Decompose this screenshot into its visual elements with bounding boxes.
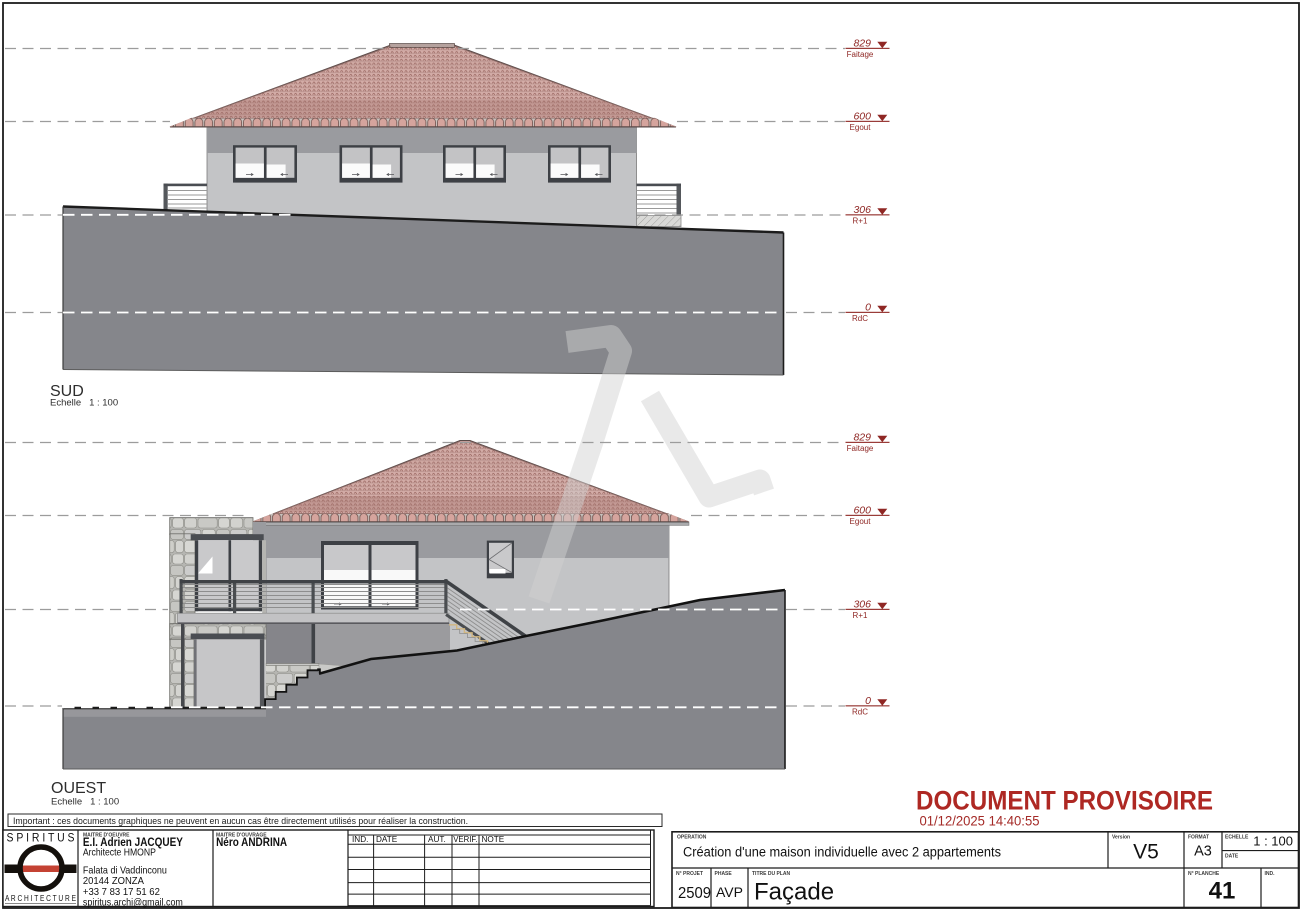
svg-text:AUT.: AUT. — [428, 835, 446, 844]
svg-text:2509: 2509 — [678, 885, 711, 902]
svg-text:S P I R I T U S: S P I R I T U S — [7, 833, 75, 845]
svg-text:Façade: Façade — [754, 879, 834, 906]
svg-text:IND.: IND. — [352, 835, 368, 844]
svg-text:N° PLANCHE: N° PLANCHE — [1188, 871, 1220, 877]
svg-text:RdC: RdC — [852, 707, 868, 716]
svg-text:600: 600 — [853, 505, 871, 517]
svg-text:A R C H I T E C T U R E: A R C H I T E C T U R E — [5, 894, 76, 903]
svg-text:A3: A3 — [1194, 844, 1212, 860]
svg-text:spiritus.archi@gmail.com: spiritus.archi@gmail.com — [83, 896, 183, 908]
svg-text:R+1: R+1 — [853, 611, 868, 620]
svg-text:TITRE DU PLAN: TITRE DU PLAN — [752, 871, 790, 877]
svg-text:OPERATION: OPERATION — [677, 835, 707, 841]
svg-text:Création d'une maison individu: Création d'une maison individuelle avec … — [683, 845, 1001, 860]
svg-text:1 : 100: 1 : 100 — [1253, 833, 1293, 848]
svg-text:IND.: IND. — [1265, 871, 1276, 877]
svg-text:OUEST: OUEST — [51, 780, 106, 797]
svg-text:Faitage: Faitage — [847, 50, 874, 59]
svg-text:Echelle 1 : 100: Echelle 1 : 100 — [50, 398, 118, 409]
svg-text:AVP: AVP — [716, 884, 743, 900]
svg-text:Egout: Egout — [850, 517, 872, 526]
svg-text:Néro ANDRINA: Néro ANDRINA — [216, 837, 287, 849]
svg-text:PHASE: PHASE — [715, 871, 733, 877]
svg-text:600: 600 — [853, 111, 871, 123]
svg-text:829: 829 — [853, 432, 871, 444]
svg-text:829: 829 — [853, 38, 871, 50]
svg-text:0: 0 — [865, 302, 871, 314]
svg-text:41: 41 — [1209, 878, 1236, 905]
svg-text:Faitage: Faitage — [847, 444, 874, 453]
svg-text:FORMAT: FORMAT — [1188, 835, 1209, 841]
svg-text:Echelle 1 : 100: Echelle 1 : 100 — [51, 797, 119, 808]
svg-text:Version: Version — [1112, 835, 1130, 841]
svg-text:01/12/2025 14:40:55: 01/12/2025 14:40:55 — [920, 813, 1040, 829]
svg-text:N° PROJET: N° PROJET — [676, 871, 703, 877]
svg-text:R+1: R+1 — [853, 216, 868, 225]
svg-text:Architecte HMONP: Architecte HMONP — [83, 847, 156, 859]
svg-text:306: 306 — [853, 599, 871, 611]
svg-text:Important : ces documents grap: Important : ces documents graphiques ne … — [13, 816, 468, 827]
svg-text:306: 306 — [853, 204, 871, 216]
svg-text:V5: V5 — [1133, 841, 1159, 864]
svg-text:RdC: RdC — [852, 314, 868, 323]
svg-text:VERIF.: VERIF. — [453, 835, 477, 844]
svg-text:DATE: DATE — [1225, 853, 1239, 859]
svg-text:Egout: Egout — [850, 123, 872, 132]
svg-text:DATE: DATE — [376, 835, 398, 844]
svg-text:DOCUMENT PROVISOIRE: DOCUMENT PROVISOIRE — [916, 786, 1213, 816]
svg-text:0: 0 — [865, 695, 871, 707]
svg-text:NOTE: NOTE — [482, 835, 505, 844]
svg-text:ECHELLE: ECHELLE — [1225, 835, 1249, 841]
